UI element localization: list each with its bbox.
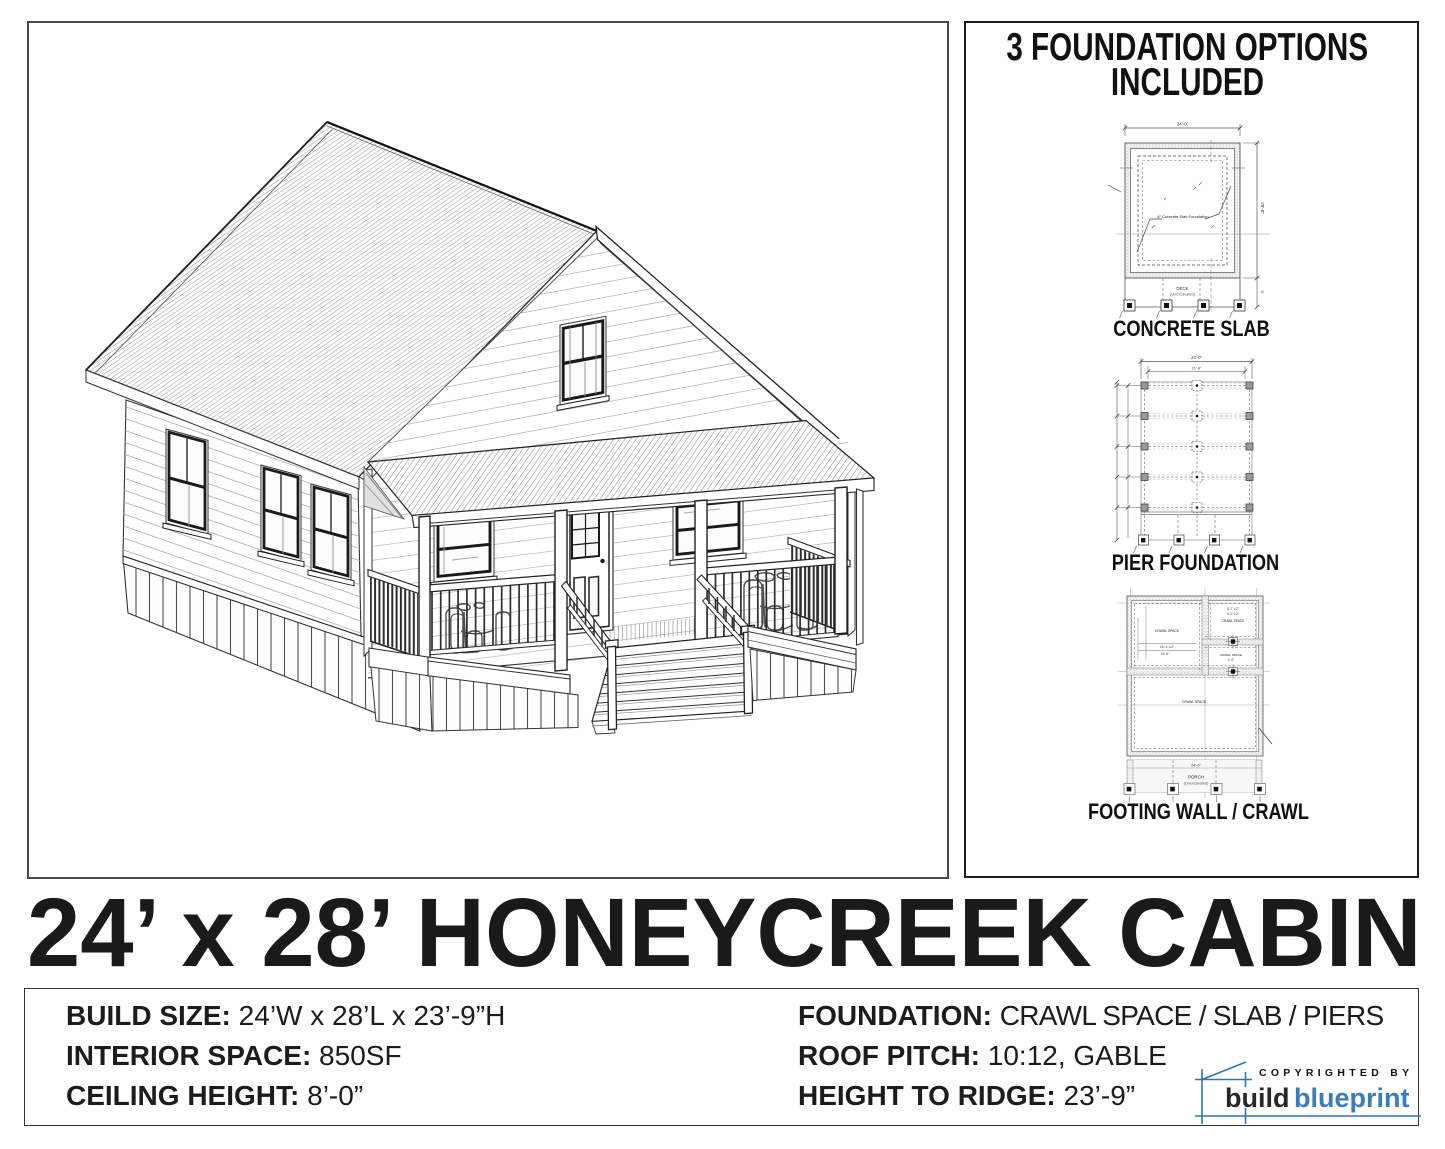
svg-text:4” Concrete Slab Foundation: 4” Concrete Slab Foundation (1157, 214, 1208, 219)
svg-text:6’: 6’ (1260, 290, 1265, 293)
svg-text:CRAWL SPACE: CRAWL SPACE (1155, 629, 1180, 633)
svg-text:24’-6”: 24’-6” (1191, 764, 1201, 768)
svg-text:28’-0”: 28’-0” (1260, 202, 1265, 214)
svg-text:CRAWL SPACE: CRAWL SPACE (1222, 619, 1245, 623)
svg-text:build: build (1225, 1083, 1289, 1113)
svg-text:PORCH: PORCH (1188, 775, 1204, 780)
svg-text:24’-0”: 24’-0” (1177, 122, 1189, 127)
svg-text:CRAWL SPACE: CRAWL SPACE (1182, 700, 1207, 704)
svg-text:COPYRIGHTED BY: COPYRIGHTED BY (1259, 1068, 1413, 1079)
svg-text:8’-7 1/2”: 8’-7 1/2” (1227, 607, 1239, 611)
svg-text:(Unexcavated): (Unexcavated) (1184, 782, 1209, 786)
svg-text:18’-3 1/2”: 18’-3 1/2” (1160, 645, 1174, 649)
svg-text:6’-9 1/2”: 6’-9 1/2” (1227, 612, 1239, 616)
svg-text:(Unexcavated): (Unexcavated) (1170, 293, 1195, 297)
svg-text:21’-8”: 21’-8” (1192, 367, 1202, 371)
svg-text:15’-6”: 15’-6” (1161, 652, 1170, 656)
svg-text:4’-0”: 4’-0” (1228, 658, 1234, 662)
svg-text:blueprint: blueprint (1294, 1083, 1410, 1113)
svg-text:DECK: DECK (1176, 286, 1188, 291)
svg-text:24’-0”: 24’-0” (1191, 355, 1203, 360)
svg-text:CRAWL SPACE: CRAWL SPACE (1220, 653, 1242, 657)
